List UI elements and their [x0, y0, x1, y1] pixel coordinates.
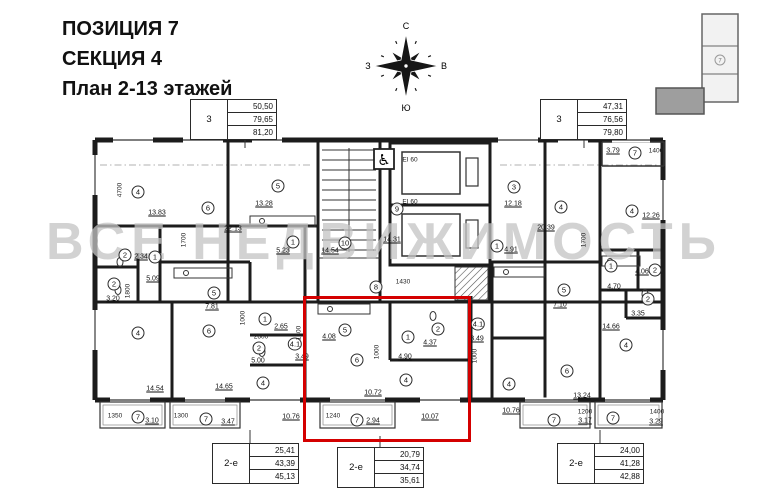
apartment-type-label: 3 [541, 100, 578, 139]
title-section: СЕКЦИЯ 4 [62, 44, 232, 74]
room-number-circle: 8 [370, 281, 383, 294]
highlighted-apartment-outline [303, 296, 471, 442]
room-area-label: 3.29 [649, 419, 663, 426]
room-number-circle: 7 [132, 411, 145, 424]
room-area-label: 7.10 [553, 302, 567, 309]
room-area-label: 4.70 [607, 284, 621, 291]
room-number-circle: 4 [132, 186, 145, 199]
room-number-circle: 7 [548, 414, 561, 427]
room-area-label: 14.66 [602, 324, 620, 331]
room-number-circle: 4 [132, 327, 145, 340]
room-number-circle: 5 [558, 284, 571, 297]
room-area-label: 3.49 [470, 336, 484, 343]
dimension-label: 1300 [174, 413, 188, 420]
title-position: ПОЗИЦИЯ 7 [62, 14, 232, 44]
room-area-label: 4.06 [635, 269, 649, 276]
area-value: 20,79 [375, 448, 423, 461]
room-number-circle: 1 [491, 240, 504, 253]
room-number-circle: 2 [119, 249, 132, 262]
room-area-label: 3.35 [631, 311, 645, 318]
room-area-label: 12.26 [642, 213, 660, 220]
dimension-label: 1300 [296, 326, 303, 340]
room-area-label: 3.10 [145, 418, 159, 425]
room-number-circle: 6 [561, 365, 574, 378]
area-value: 35,61 [375, 474, 423, 487]
area-value: 43,39 [250, 457, 298, 470]
dimension-label: 4700 [117, 183, 124, 197]
room-number-circle: 4.1 [471, 318, 485, 331]
area-value: 24,00 [595, 444, 643, 457]
area-value: 34,74 [375, 461, 423, 474]
room-number-circle: 7 [607, 412, 620, 425]
area-value: 42,88 [595, 470, 643, 483]
summary-box-bottom-middle: 2-е 20,79 34,74 35,61 [337, 447, 424, 488]
room-number-circle: 2 [108, 278, 121, 291]
room-area-label: 4.91 [504, 247, 518, 254]
room-number-circle: 2 [253, 342, 266, 355]
summary-box-top-left: 3 50,50 79,65 81,20 [190, 99, 277, 140]
room-area-label: 7.81 [205, 304, 219, 311]
room-area-label: 13.24 [573, 393, 591, 400]
dimension-label: EI 60 [402, 199, 417, 206]
area-value: 79,80 [578, 126, 626, 139]
apartment-type-label: 2-е [558, 444, 595, 483]
dimension-label: 1400 [649, 148, 663, 155]
room-area-label: 14.65 [215, 384, 233, 391]
dimension-label: 1430 [396, 279, 410, 286]
room-area-label: 10.76 [282, 414, 300, 421]
area-value: 79,65 [228, 113, 276, 126]
room-number-circle: 6 [202, 202, 215, 215]
area-value: 81,20 [228, 126, 276, 139]
apartment-type-label: 2-е [213, 444, 250, 483]
summary-box-top-right: 3 47,31 76,56 79,80 [540, 99, 627, 140]
room-area-label: 5.00 [251, 358, 265, 365]
room-area-label: 3.79 [606, 148, 620, 155]
room-area-label: 13.83 [148, 210, 166, 217]
room-area-label: 14.54 [146, 386, 164, 393]
dimension-label: EI 60 [402, 157, 417, 164]
room-number-circle: 4 [555, 201, 568, 214]
room-number-circle: 1 [259, 313, 272, 326]
room-area-label: 3.20 [106, 296, 120, 303]
room-area-label: 3.47 [221, 419, 235, 426]
room-area-label: 10.76 [502, 408, 520, 415]
room-area-label: 14.54 [321, 248, 339, 255]
room-area-label: 12.18 [504, 201, 522, 208]
apartment-type-label: 2-е [338, 448, 375, 487]
room-number-circle: 4 [626, 205, 639, 218]
dimension-label: 1800 [125, 284, 132, 298]
floor-plan-page: ♿ С Ю З В 7 ВСЕ НЕДВИ [0, 0, 784, 500]
summary-box-bottom-left: 2-е 25,41 43,39 45,13 [212, 443, 299, 484]
room-area-label: 5.09 [146, 276, 160, 283]
room-area-label: 2.34 [134, 254, 148, 261]
apartment-type-label: 3 [191, 100, 228, 139]
dimension-label: 2600 [254, 334, 268, 341]
room-number-circle: 1 [605, 260, 618, 273]
room-area-label: 14.31 [383, 237, 401, 244]
room-number-circle: 5 [208, 287, 221, 300]
area-value: 50,50 [228, 100, 276, 113]
room-number-circle: 2 [649, 264, 662, 277]
area-value: 41,28 [595, 457, 643, 470]
room-number-circle: 6 [203, 325, 216, 338]
room-area-label: 13.28 [255, 201, 273, 208]
room-number-circle: 10 [339, 237, 352, 250]
summary-box-bottom-right: 2-е 24,00 41,28 42,88 [557, 443, 644, 484]
plan-title: ПОЗИЦИЯ 7 СЕКЦИЯ 4 План 2-13 этажей [62, 14, 232, 104]
room-area-label: 3.17 [578, 418, 592, 425]
room-number-circle: 7 [629, 147, 642, 160]
dimension-label: 1700 [581, 233, 588, 247]
dimension-label: 1200 [578, 409, 592, 416]
area-value: 47,31 [578, 100, 626, 113]
dimension-label: 1000 [472, 349, 479, 363]
room-number-circle: 5 [272, 180, 285, 193]
room-area-label: 5.23 [276, 248, 290, 255]
room-number-circle: 7 [200, 413, 213, 426]
room-number-circle: 4 [257, 377, 270, 390]
room-area-label: 2.65 [274, 324, 288, 331]
room-area-label: 20.39 [537, 225, 555, 232]
room-number-circle: 3 [508, 181, 521, 194]
room-area-label: 22.13 [224, 226, 242, 233]
room-number-circle: 2 [642, 293, 655, 306]
dimension-label: 1350 [108, 413, 122, 420]
room-number-circle: 4 [620, 339, 633, 352]
dimension-label: 1700 [181, 233, 188, 247]
area-value: 45,13 [250, 470, 298, 483]
dimension-label: 1400 [650, 409, 664, 416]
area-value: 76,56 [578, 113, 626, 126]
area-value: 25,41 [250, 444, 298, 457]
room-number-circle: 1 [149, 251, 162, 264]
room-number-circle: 4 [503, 378, 516, 391]
dimension-label: 1000 [240, 311, 247, 325]
